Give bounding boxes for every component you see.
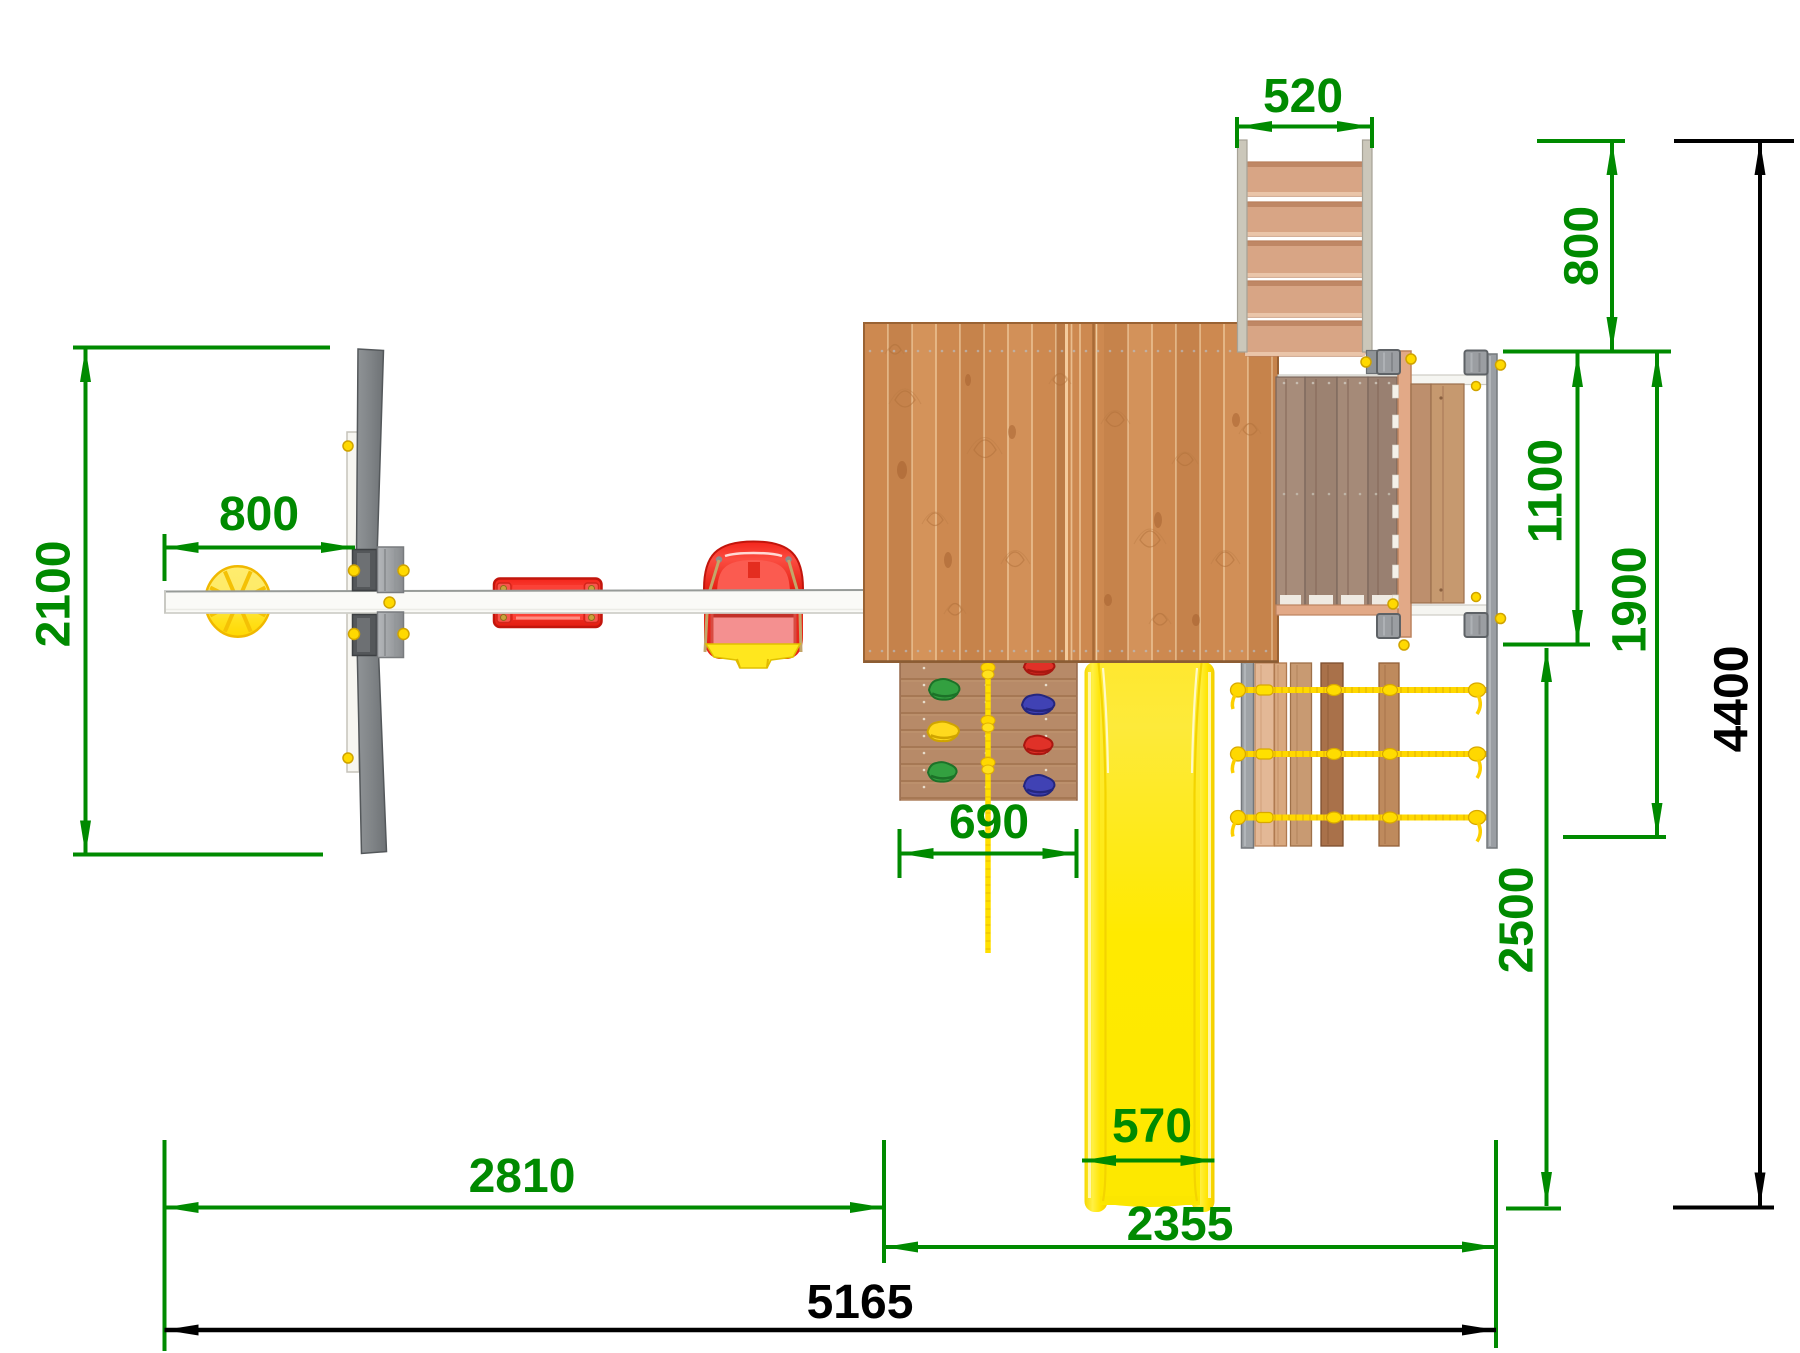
svg-text:5165: 5165 [807, 1276, 914, 1329]
svg-text:690: 690 [949, 796, 1029, 849]
svg-text:2355: 2355 [1127, 1198, 1234, 1251]
svg-text:800: 800 [1556, 206, 1609, 286]
svg-text:1100: 1100 [1520, 439, 1573, 543]
svg-text:520: 520 [1263, 70, 1343, 123]
svg-text:2500: 2500 [1491, 867, 1544, 974]
svg-text:1900: 1900 [1604, 547, 1657, 654]
svg-text:570: 570 [1112, 1100, 1192, 1153]
svg-text:2100: 2100 [28, 541, 81, 648]
svg-text:4400: 4400 [1706, 646, 1759, 753]
svg-text:800: 800 [219, 488, 299, 541]
svg-text:2810: 2810 [469, 1150, 576, 1203]
